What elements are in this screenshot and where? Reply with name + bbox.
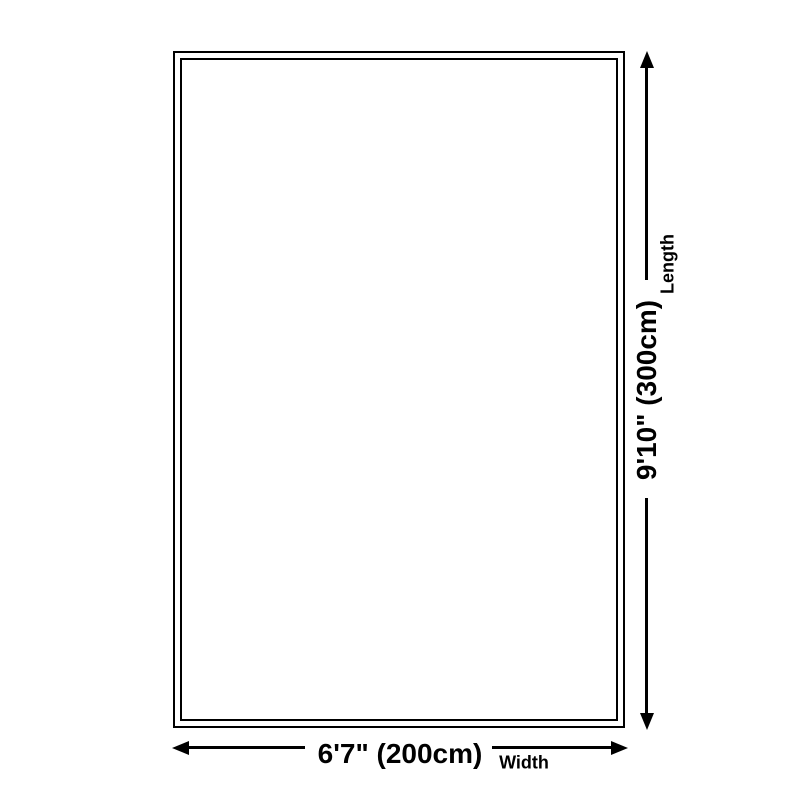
width-arrow-line-right (492, 746, 612, 749)
rug-outline-inner (180, 58, 618, 721)
length-arrow-line-top (645, 66, 648, 280)
width-arrow-line-left (188, 746, 305, 749)
arrowhead-left-icon (172, 741, 189, 755)
width-label: Width (499, 753, 549, 774)
rug-size-diagram: 9'10" (300cm) Length 6'7" (200cm) Width (0, 0, 800, 800)
arrowhead-down-icon (640, 713, 654, 730)
length-value: 9'10" (300cm) (631, 300, 663, 480)
width-value: 6'7" (200cm) (318, 738, 483, 770)
length-label: Length (658, 234, 679, 294)
rug-outline-outer (173, 51, 625, 728)
length-arrow-line-bottom (645, 498, 648, 713)
arrowhead-right-icon (611, 741, 628, 755)
